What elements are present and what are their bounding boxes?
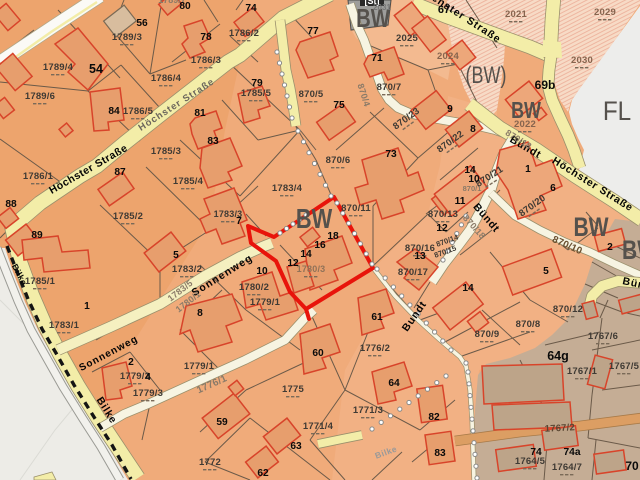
svg-text:2024: 2024 — [437, 51, 459, 62]
svg-text:8: 8 — [470, 124, 476, 135]
svg-text:7: 7 — [236, 216, 242, 227]
svg-text:56: 56 — [136, 18, 148, 29]
svg-text:77: 77 — [307, 26, 319, 37]
svg-text:1789/4: 1789/4 — [43, 62, 74, 73]
svg-text:84: 84 — [108, 106, 120, 117]
svg-text:870/9: 870/9 — [475, 329, 500, 340]
svg-text:83: 83 — [207, 136, 219, 147]
svg-text:870/17: 870/17 — [398, 267, 428, 278]
svg-text:870/5: 870/5 — [299, 89, 324, 100]
svg-text:1786/2: 1786/2 — [229, 28, 259, 39]
svg-text:BW: BW — [573, 213, 608, 243]
svg-text:1785/2: 1785/2 — [113, 211, 143, 222]
svg-text:61: 61 — [371, 312, 383, 323]
svg-text:14: 14 — [462, 283, 474, 294]
svg-text:1780/2: 1780/2 — [239, 282, 269, 293]
svg-text:1783/2: 1783/2 — [172, 264, 202, 275]
svg-text:74: 74 — [530, 447, 542, 458]
svg-text:69b: 69b — [535, 78, 556, 92]
svg-text:870/8: 870/8 — [516, 319, 541, 330]
svg-text:1786/1: 1786/1 — [23, 171, 54, 182]
svg-text:1786/4: 1786/4 — [151, 73, 182, 84]
svg-text:14: 14 — [300, 249, 312, 260]
svg-text:1767/2: 1767/2 — [544, 422, 575, 435]
svg-text:1783/1: 1783/1 — [49, 320, 80, 331]
svg-text:1789/3: 1789/3 — [112, 32, 142, 43]
svg-text:88: 88 — [5, 199, 17, 210]
svg-text:82: 82 — [428, 412, 440, 423]
svg-text:1779/3: 1779/3 — [133, 388, 163, 399]
svg-text:10: 10 — [468, 174, 480, 185]
svg-text:63: 63 — [290, 441, 302, 452]
svg-text:74a: 74a — [564, 447, 581, 458]
svg-text:59: 59 — [216, 417, 228, 428]
svg-text:8: 8 — [197, 308, 203, 319]
svg-text:2029: 2029 — [594, 7, 616, 18]
svg-text:78: 78 — [200, 32, 212, 43]
svg-text:79: 79 — [251, 78, 263, 89]
svg-text:870/13: 870/13 — [428, 209, 458, 220]
svg-text:1764/7: 1764/7 — [552, 462, 582, 473]
svg-text:870/6: 870/6 — [326, 155, 351, 166]
svg-text:2: 2 — [128, 357, 134, 368]
svg-text:870/12: 870/12 — [553, 304, 583, 315]
svg-text:80: 80 — [179, 1, 191, 12]
svg-text:1: 1 — [525, 164, 531, 175]
svg-text:2031: 2031 — [373, 3, 391, 12]
svg-text:870/1: 870/1 — [463, 184, 482, 193]
svg-text:(BW): (BW) — [466, 63, 507, 89]
svg-text:1785/1: 1785/1 — [25, 276, 56, 287]
svg-text:16: 16 — [314, 240, 326, 251]
svg-text:1785/4: 1785/4 — [173, 176, 204, 187]
svg-text:12: 12 — [436, 223, 448, 234]
svg-text:70: 70 — [625, 459, 639, 473]
svg-text:1780/3: 1780/3 — [297, 264, 326, 274]
svg-text:1: 1 — [84, 301, 90, 312]
svg-text:2022: 2022 — [514, 119, 536, 130]
svg-text:1779/1: 1779/1 — [184, 361, 215, 372]
svg-text:2025: 2025 — [396, 33, 418, 44]
svg-text:1775: 1775 — [282, 384, 304, 395]
svg-text:4: 4 — [145, 372, 151, 383]
svg-text:1789/6: 1789/6 — [25, 91, 55, 102]
svg-text:BW: BW — [296, 203, 333, 234]
svg-text:1767/6: 1767/6 — [588, 331, 618, 342]
svg-text:1783/4: 1783/4 — [272, 183, 303, 194]
svg-text:64g: 64g — [547, 349, 569, 363]
svg-text:13: 13 — [414, 251, 426, 262]
svg-text:10: 10 — [256, 266, 268, 277]
svg-text:9: 9 — [447, 104, 453, 115]
svg-text:62: 62 — [257, 468, 269, 479]
svg-text:870/7: 870/7 — [377, 82, 402, 93]
svg-text:5: 5 — [543, 266, 549, 277]
svg-text:1785/3: 1785/3 — [151, 146, 181, 157]
svg-text:2: 2 — [607, 242, 613, 253]
svg-text:1779/1: 1779/1 — [250, 297, 281, 308]
svg-text:71: 71 — [371, 53, 383, 64]
svg-text:12: 12 — [287, 258, 299, 269]
svg-text:83: 83 — [434, 448, 446, 459]
svg-text:1767/1: 1767/1 — [567, 366, 598, 377]
svg-text:1786/5: 1786/5 — [123, 106, 154, 117]
svg-text:2030: 2030 — [571, 55, 593, 66]
svg-text:1785/5: 1785/5 — [241, 88, 272, 99]
svg-text:5: 5 — [173, 250, 179, 261]
svg-text:54: 54 — [89, 62, 103, 76]
svg-text:75: 75 — [333, 100, 345, 111]
svg-text:FL: FL — [603, 97, 631, 126]
svg-text:73: 73 — [385, 149, 397, 160]
svg-text:1776/2: 1776/2 — [360, 343, 390, 354]
svg-text:1772: 1772 — [199, 457, 221, 468]
svg-text:870/11: 870/11 — [341, 203, 371, 214]
svg-text:64: 64 — [388, 378, 400, 389]
svg-text:1767/5: 1767/5 — [609, 361, 640, 372]
svg-text:2021: 2021 — [505, 9, 527, 20]
svg-text:11: 11 — [455, 196, 466, 207]
svg-text:81: 81 — [194, 108, 206, 119]
svg-text:87: 87 — [114, 167, 126, 178]
svg-text:60: 60 — [312, 348, 324, 359]
svg-text:18: 18 — [327, 231, 339, 242]
svg-text:1771/4: 1771/4 — [303, 421, 334, 432]
svg-text:89: 89 — [31, 230, 43, 241]
svg-text:1771/3: 1771/3 — [353, 405, 383, 416]
svg-text:1786/3: 1786/3 — [191, 55, 221, 66]
svg-text:BW: BW — [622, 236, 640, 266]
svg-text:6: 6 — [550, 183, 556, 194]
svg-text:74: 74 — [245, 3, 257, 14]
